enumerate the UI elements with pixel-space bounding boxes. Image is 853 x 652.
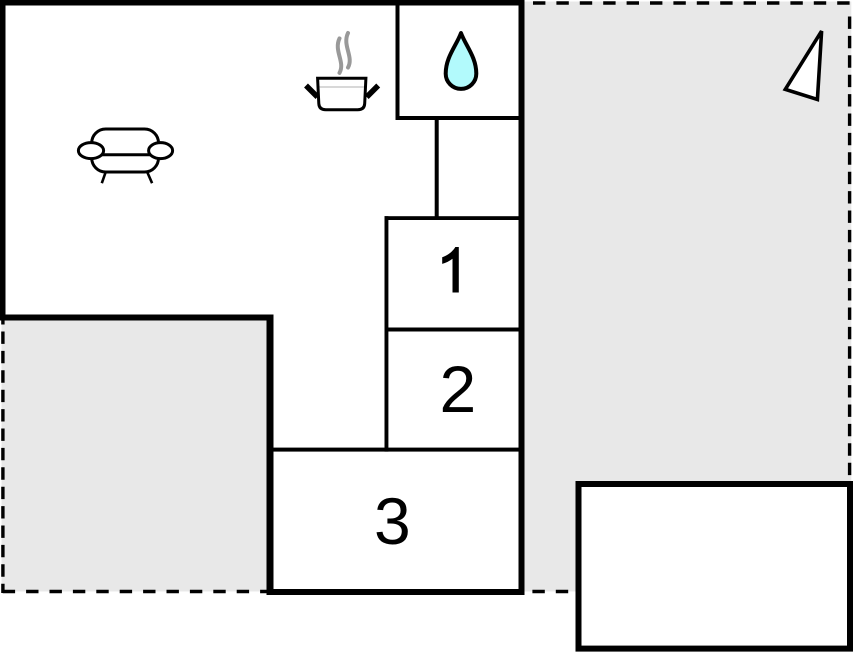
svg-text:2: 2 (439, 352, 476, 426)
svg-text:3: 3 (374, 484, 411, 558)
